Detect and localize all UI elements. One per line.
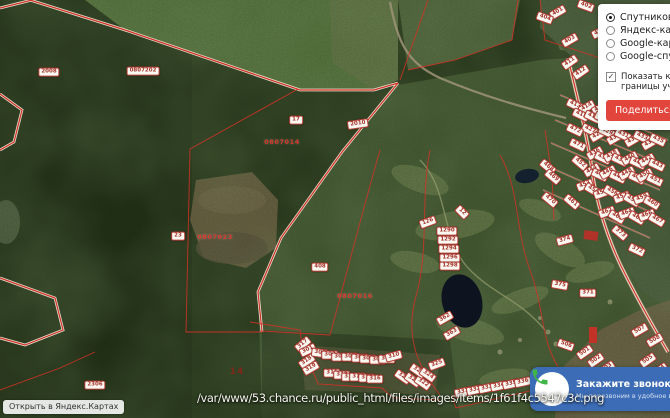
map-type-label: Google-спутник [620,50,670,63]
cadastral-checkbox-label: Показать кадастровые границы участков [621,72,670,92]
map-type-option[interactable]: Google-спутник [606,50,670,63]
map-type-options: Спутниковая картаЯндекс-картаGoogle-карт… [606,11,670,63]
radio-icon [606,39,615,48]
radio-icon [606,13,615,22]
open-in-yandex-maps-button[interactable]: Открыть в Яндекс.Картах [3,400,124,414]
map-layers-panel: Спутниковая картаЯндекс-картаGoogle-карт… [598,4,670,130]
file-path-overlay: /var/www/53.chance.ru/public_html/files/… [197,391,604,405]
map-type-option[interactable]: Спутниковая карта [606,11,670,24]
map-type-option[interactable]: Яндекс-карта [606,24,670,37]
cadastral-checkbox-row[interactable]: Показать кадастровые границы участков [606,72,670,92]
satellite-map[interactable] [0,0,670,418]
callback-title: Закажите звонок [576,379,670,390]
radio-icon [606,26,615,35]
map-type-label: Спутниковая карта [620,11,670,24]
checkbox-checked-icon [606,72,616,82]
share-button[interactable]: Поделиться [606,100,670,121]
radio-icon [606,52,615,61]
map-type-label: Google-карта [620,37,670,50]
map-type-option[interactable]: Google-карта [606,37,670,50]
map-type-label: Яндекс-карта [620,24,670,37]
map-viewport: 2008080720217201023230608070140807023080… [0,0,670,418]
